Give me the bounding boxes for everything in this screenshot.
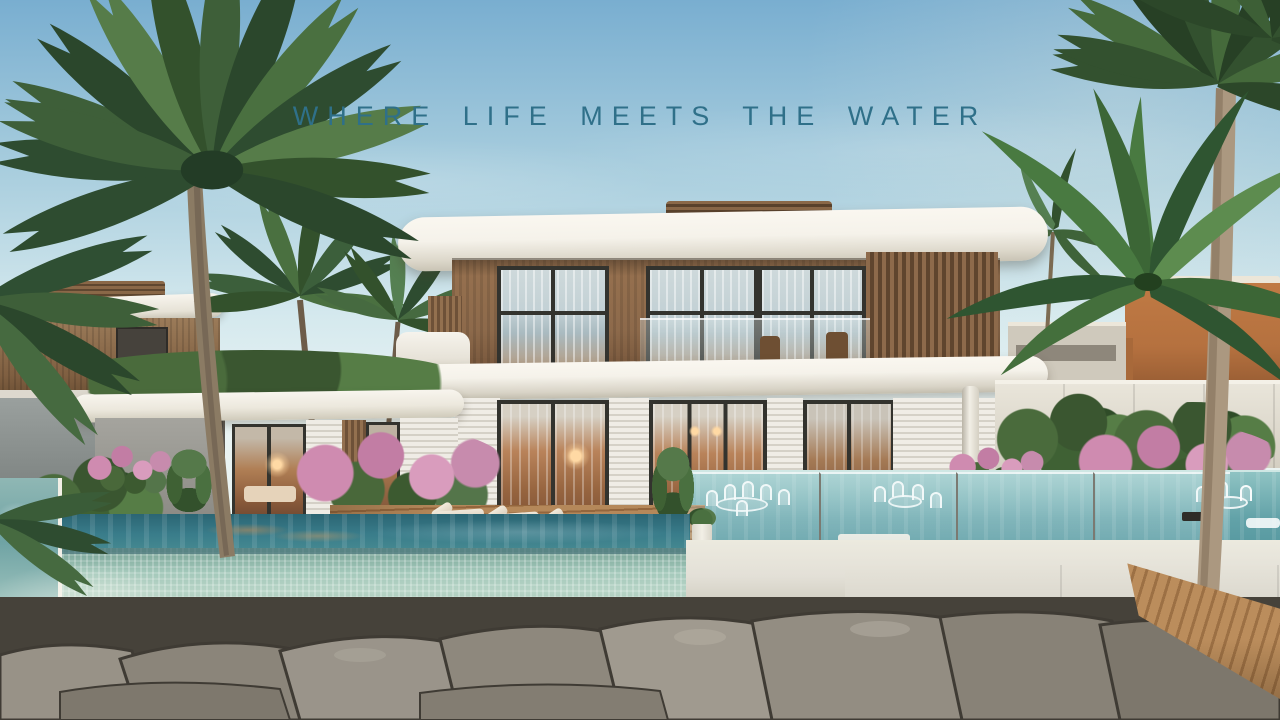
luxury-villa-hero-image: WHERE LIFE MEETS THE WATER (0, 0, 1280, 720)
background-building-window-band (1016, 345, 1116, 361)
tagline: WHERE LIFE MEETS THE WATER (0, 101, 1280, 132)
glass-fence-fitting (1182, 512, 1208, 521)
potted-fern (160, 440, 218, 520)
pool-white-lounger (1246, 518, 1280, 528)
shoreline-rocks (0, 597, 1280, 720)
